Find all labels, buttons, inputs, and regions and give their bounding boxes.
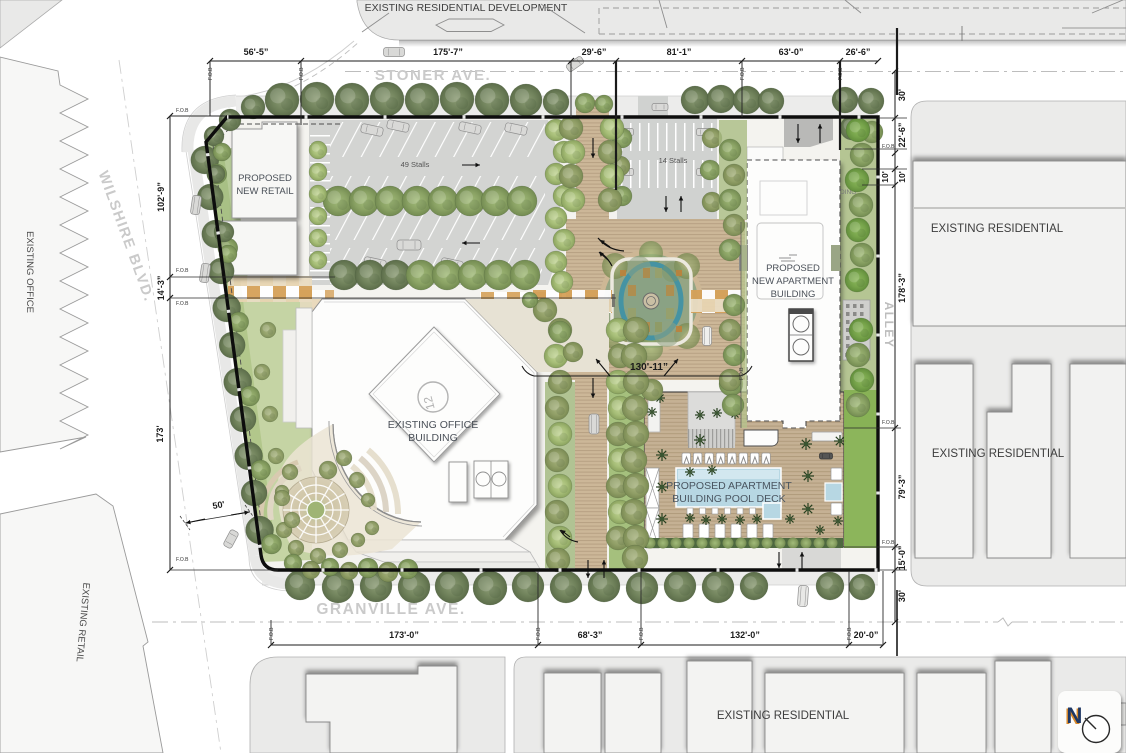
svg-text:F.O.B: F.O.B: [176, 268, 189, 274]
svg-text:14'-3”: 14'-3”: [156, 276, 166, 301]
svg-text:49 Stalls: 49 Stalls: [401, 160, 430, 169]
svg-text:F.O.B: F.O.B: [536, 627, 542, 640]
svg-text:F.O.B: F.O.B: [882, 540, 895, 546]
svg-text:BUILDING: BUILDING: [408, 432, 458, 444]
svg-text:79'-3”: 79'-3”: [897, 475, 907, 500]
svg-text:F.O.B: F.O.B: [639, 627, 645, 640]
svg-text:N: N: [1067, 703, 1083, 728]
svg-text:F.O.B: F.O.B: [739, 367, 745, 380]
svg-text:175'-7”: 175'-7”: [433, 47, 463, 57]
svg-text:50': 50': [212, 499, 226, 511]
svg-text:EXISTING RESIDENTIAL DEVELOPME: EXISTING RESIDENTIAL DEVELOPMENT: [365, 2, 568, 14]
svg-text:173': 173': [155, 425, 165, 442]
svg-text:30': 30': [897, 590, 907, 602]
svg-text:20'-0”: 20'-0”: [854, 630, 879, 640]
svg-text:130'-11”: 130'-11”: [630, 362, 668, 373]
svg-text:STONER AVE.: STONER AVE.: [375, 67, 491, 84]
svg-text:PROPOSED: PROPOSED: [766, 263, 820, 274]
svg-text:178'-3”: 178'-3”: [897, 273, 907, 303]
svg-text:F.O.B: F.O.B: [176, 108, 189, 114]
svg-text:10': 10': [880, 171, 890, 182]
svg-text:10': 10': [897, 171, 907, 182]
svg-text:132'-0”: 132'-0”: [730, 630, 760, 640]
svg-text:F.O.B: F.O.B: [882, 144, 895, 150]
svg-text:F.O.B: F.O.B: [269, 627, 275, 640]
svg-text:173'-0”: 173'-0”: [389, 630, 419, 640]
svg-text:EXISTING OFFICE: EXISTING OFFICE: [388, 419, 478, 431]
svg-text:F.O.B: F.O.B: [208, 67, 214, 80]
svg-text:14 Stalls: 14 Stalls: [659, 156, 688, 165]
svg-text:56'-5”: 56'-5”: [244, 47, 269, 57]
svg-text:BUILDING: BUILDING: [771, 289, 816, 300]
svg-text:F.O.B: F.O.B: [299, 67, 305, 80]
svg-text:F.O.B: F.O.B: [838, 67, 844, 80]
svg-text:EXISTING RESIDENTIAL: EXISTING RESIDENTIAL: [931, 223, 1064, 235]
svg-text:102'-9”: 102'-9”: [156, 182, 166, 212]
svg-text:BUILDING POOL DECK: BUILDING POOL DECK: [672, 493, 785, 505]
svg-text:15'-0”: 15'-0”: [897, 546, 907, 571]
svg-text:F.O.B: F.O.B: [176, 557, 189, 563]
svg-text:29'-6”: 29'-6”: [582, 47, 607, 57]
svg-text:68'-3”: 68'-3”: [578, 630, 603, 640]
svg-text:26'-6”: 26'-6”: [846, 47, 871, 57]
svg-text:81'-1”: 81'-1”: [667, 47, 692, 57]
svg-text:63'-0”: 63'-0”: [779, 47, 804, 57]
svg-text:EXISTING OFFICE: EXISTING OFFICE: [24, 231, 35, 313]
svg-text:NEW APARTMENT: NEW APARTMENT: [752, 276, 834, 287]
svg-text:EXISTING RESIDENTIAL: EXISTING RESIDENTIAL: [717, 710, 850, 722]
svg-text:F.O.B: F.O.B: [882, 420, 895, 426]
svg-text:F.O.B: F.O.B: [847, 627, 853, 640]
svg-text:F.O.B: F.O.B: [176, 301, 189, 307]
svg-text:EXISTING RESIDENTIAL: EXISTING RESIDENTIAL: [932, 448, 1065, 460]
svg-text:30': 30': [897, 89, 907, 101]
svg-text:PROPOSED APARTMENT: PROPOSED APARTMENT: [666, 480, 792, 492]
svg-text:GRANVILLE AVE.: GRANVILLE AVE.: [316, 601, 465, 618]
svg-text:F.O.B: F.O.B: [740, 67, 746, 80]
svg-text:PROPOSED: PROPOSED: [238, 173, 292, 184]
svg-text:NEW RETAIL: NEW RETAIL: [236, 186, 293, 197]
svg-text:22'-6”: 22'-6”: [897, 123, 907, 148]
svg-text:ALLEY: ALLEY: [882, 302, 896, 349]
